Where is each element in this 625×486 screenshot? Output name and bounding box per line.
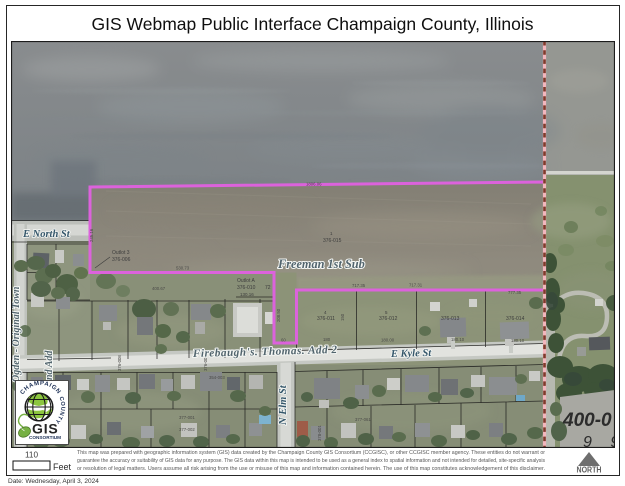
svg-text:150: 150 [340,313,345,321]
svg-text:NORTH: NORTH [577,465,602,475]
svg-text:208.50: 208.50 [276,308,281,322]
svg-text:245.16: 245.16 [89,228,94,242]
svg-text:180: 180 [323,337,331,342]
svg-text:376-010: 376-010 [237,285,256,291]
svg-text:nd Add: nd Add [44,350,55,380]
svg-text:376-015: 376-015 [323,238,342,244]
svg-text:130.16: 130.16 [240,292,254,297]
svg-text:This map was prepared with geo: This map was prepared with geographic in… [77,450,545,456]
svg-text:Feet: Feet [53,462,72,472]
svg-text:or resolution of legal matters: or resolution of legal matters. Users as… [77,466,545,472]
svg-text:Outlot 3: Outlot 3 [112,250,130,256]
svg-text:377-002: 377-002 [179,427,195,432]
svg-text:Outlot A: Outlot A [237,278,255,284]
svg-text:354-003: 354-003 [209,375,225,380]
svg-text:777.35: 777.35 [508,290,522,295]
svg-text:CONSORTIUM: CONSORTIUM [29,435,61,440]
svg-text:378-001: 378-001 [317,425,322,441]
svg-text:60: 60 [281,338,286,343]
svg-text:376-006: 376-006 [112,257,131,263]
svg-text:E North St: E North St [22,229,71,240]
svg-text:376-014: 376-014 [506,316,525,322]
svg-text:530.73: 530.73 [176,266,190,271]
svg-text:377-061: 377-061 [355,417,371,422]
svg-text:376-011: 376-011 [317,316,335,322]
svg-text:400-0: 400-0 [562,410,612,431]
svg-text:377-001: 377-001 [179,415,195,420]
svg-text:180.10: 180.10 [511,338,525,343]
svg-text:N Elm St: N Elm St [278,384,289,426]
svg-text:Ogden - Original Town: Ogden - Original Town [11,286,22,382]
svg-text:376-012: 376-012 [379,316,398,322]
svg-text:180.00: 180.00 [381,338,395,343]
svg-text:376-013: 376-013 [441,316,460,322]
svg-text:Freeman 1st Sub: Freeman 1st Sub [277,257,365,271]
svg-text:72: 72 [265,285,271,291]
svg-text:717.35: 717.35 [352,283,366,288]
svg-text:717.31: 717.31 [409,283,423,288]
svg-text:E Kyle St: E Kyle St [390,348,433,360]
svg-text:110: 110 [25,451,38,460]
svg-text:376-008: 376-008 [117,355,122,371]
svg-text:180.10: 180.10 [451,337,465,342]
svg-text:guarantee the accuracy or suit: guarantee the accuracy or suitability of… [77,458,545,464]
svg-text:Date: Wednesday, April 3, 2024: Date: Wednesday, April 3, 2024 [8,478,99,485]
svg-text:400.67: 400.67 [152,286,166,291]
svg-text:1806.06: 1806.06 [306,182,322,187]
